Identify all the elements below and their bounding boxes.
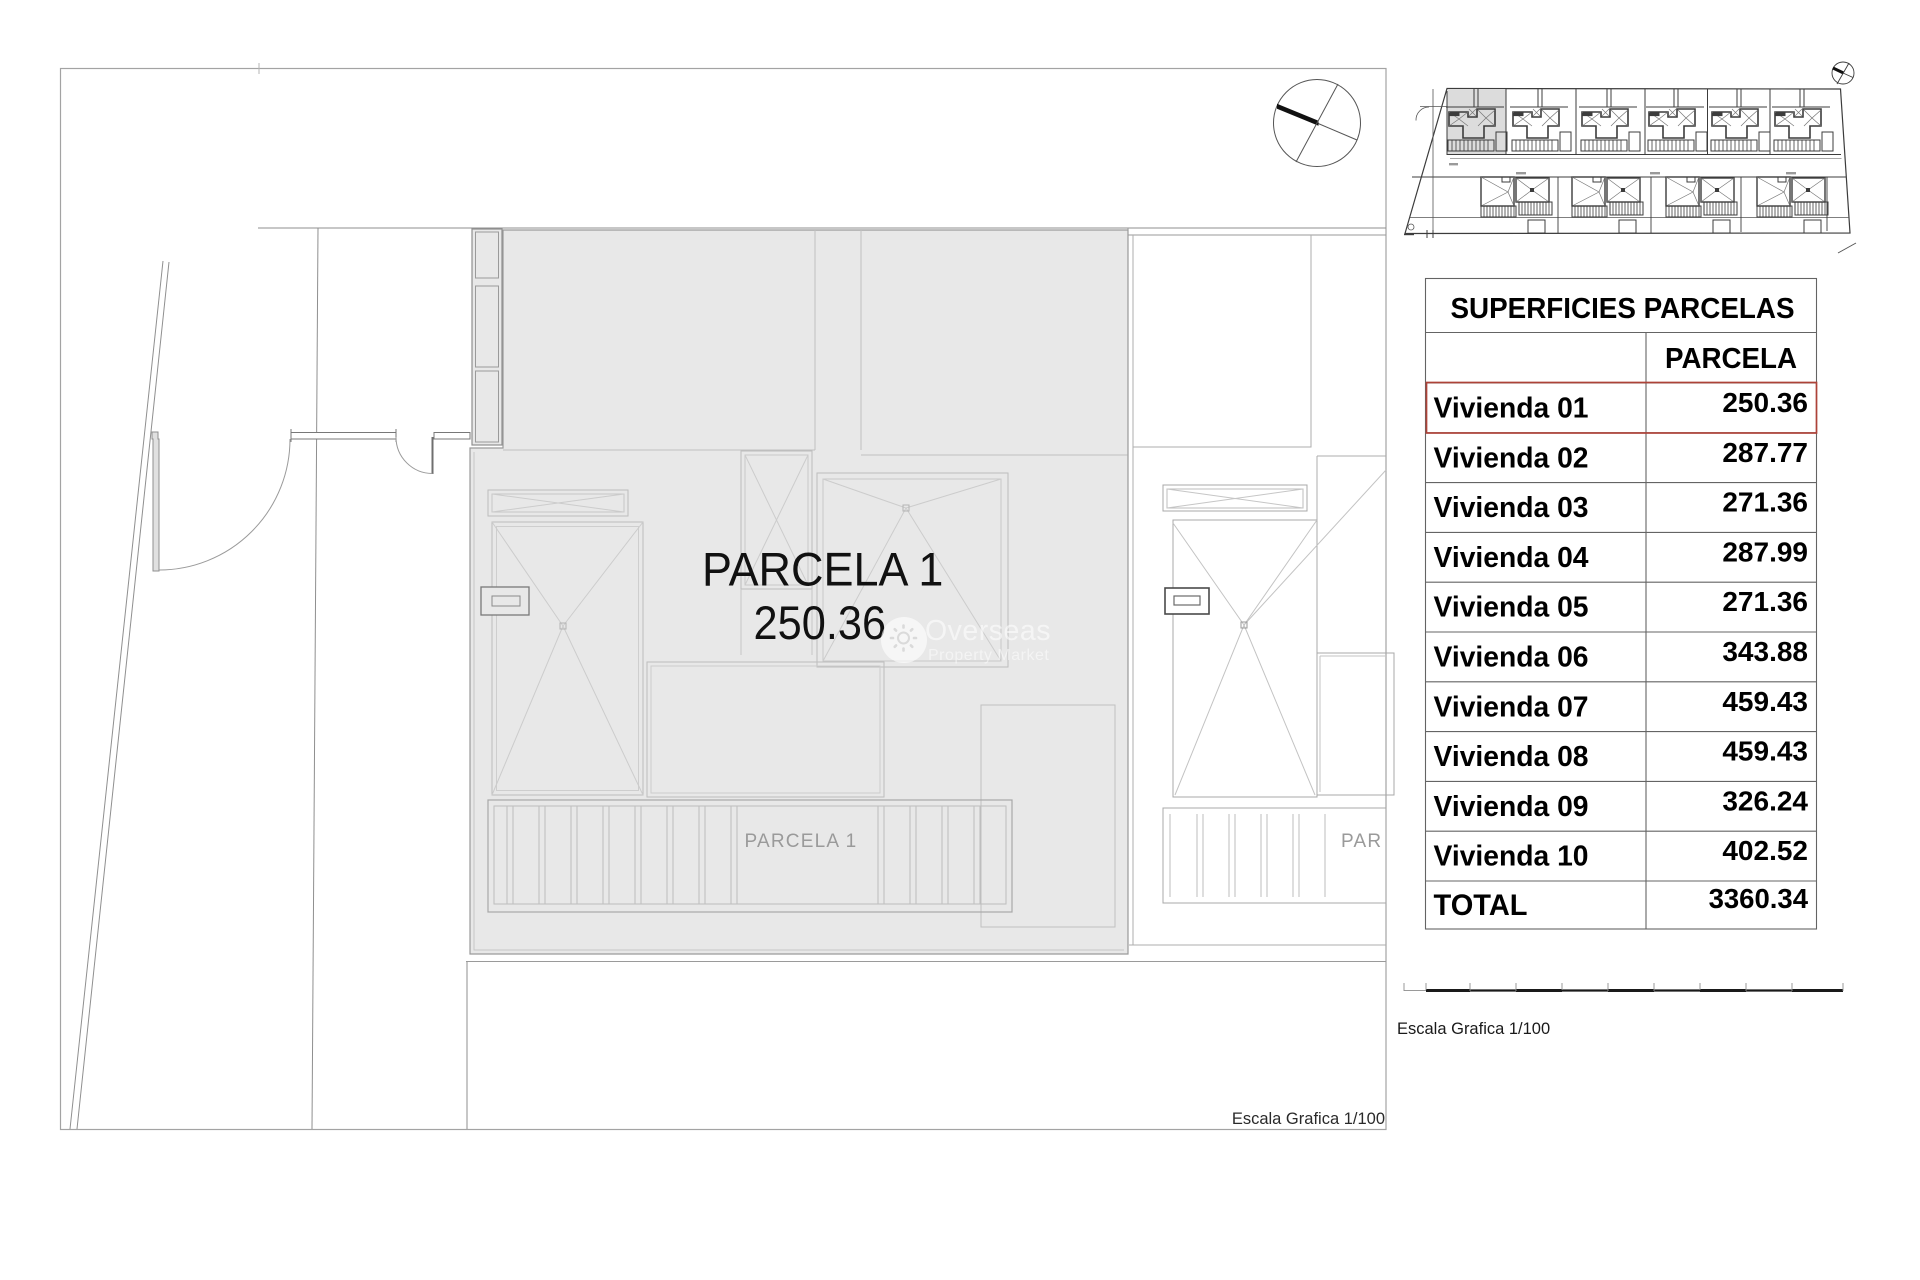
svg-text:271.36: 271.36 xyxy=(1722,586,1808,617)
svg-text:Escala Grafica 1/100: Escala Grafica 1/100 xyxy=(1232,1110,1385,1128)
svg-text:Vivienda 09: Vivienda 09 xyxy=(1434,791,1589,823)
svg-text:Vivienda 05: Vivienda 05 xyxy=(1434,592,1589,624)
svg-text:PARCELA 1: PARCELA 1 xyxy=(702,543,944,596)
svg-text:Overseas: Overseas xyxy=(925,615,1051,647)
svg-text:Vivienda 08: Vivienda 08 xyxy=(1434,741,1589,773)
svg-text:TOTAL: TOTAL xyxy=(1434,889,1528,922)
svg-text:287.99: 287.99 xyxy=(1722,536,1808,567)
svg-text:250.36: 250.36 xyxy=(1722,387,1808,418)
svg-text:326.24: 326.24 xyxy=(1722,785,1808,816)
svg-text:Vivienda 03: Vivienda 03 xyxy=(1434,492,1589,524)
svg-text:271.36: 271.36 xyxy=(1722,487,1808,518)
svg-text:SUPERFICIES PARCELAS: SUPERFICIES PARCELAS xyxy=(1451,293,1795,325)
svg-text:Vivienda 10: Vivienda 10 xyxy=(1434,841,1589,873)
svg-text:287.77: 287.77 xyxy=(1722,437,1808,468)
svg-text:3360.34: 3360.34 xyxy=(1709,883,1809,914)
svg-text:Escala Grafica 1/100: Escala Grafica 1/100 xyxy=(1397,1020,1550,1038)
svg-text:Vivienda 01: Vivienda 01 xyxy=(1434,393,1589,425)
svg-text:Vivienda 04: Vivienda 04 xyxy=(1434,542,1589,574)
svg-text:PAR: PAR xyxy=(1341,831,1382,852)
svg-text:402.52: 402.52 xyxy=(1722,835,1808,866)
svg-text:Vivienda 02: Vivienda 02 xyxy=(1434,442,1589,474)
svg-text:459.43: 459.43 xyxy=(1722,736,1808,767)
svg-text:Vivienda 06: Vivienda 06 xyxy=(1434,642,1589,674)
svg-text:PARCELA: PARCELA xyxy=(1665,343,1797,375)
svg-text:Vivienda 07: Vivienda 07 xyxy=(1434,691,1589,723)
svg-text:PARCELA 1: PARCELA 1 xyxy=(745,831,858,852)
svg-text:459.43: 459.43 xyxy=(1722,686,1808,717)
svg-text:250.36: 250.36 xyxy=(754,596,887,649)
svg-text:343.88: 343.88 xyxy=(1722,636,1808,667)
svg-text:Property Market: Property Market xyxy=(928,647,1049,664)
